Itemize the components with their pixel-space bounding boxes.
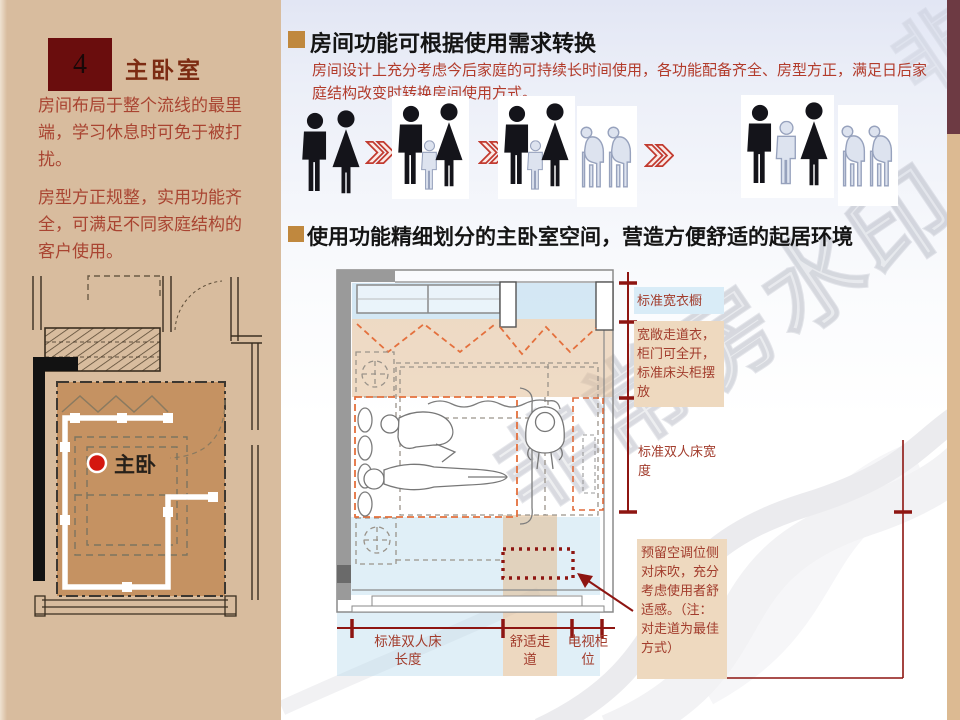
person-elder-icon	[605, 110, 636, 203]
sidebar-paragraph-2: 房型方正规整，实用功能齐全，可满足不同家庭结构的客户使用。	[38, 184, 254, 265]
bedroom-plan-diagram	[282, 255, 947, 695]
closet-dashed-outline	[88, 276, 160, 300]
tv-unit	[583, 435, 595, 493]
annotation-wardrobe: 标准宽衣橱	[634, 287, 724, 314]
family-stage-3-elders	[577, 106, 637, 207]
label-bed-length: 标准双人床长度	[372, 633, 444, 669]
section-number: 4	[73, 49, 87, 81]
sidebar-paragraph-1: 房间布局于整个流线的最里端，学习休息时可免于被打扰。	[38, 92, 254, 173]
family-stage-2	[392, 96, 469, 199]
red-dot-icon	[88, 454, 106, 472]
square-bullet-icon-2	[288, 226, 304, 242]
family-stage-3	[498, 96, 575, 199]
thick-wall-left	[33, 371, 45, 581]
edge-strip-bottom	[947, 134, 960, 720]
label-tv-cabinet: 电视柜位	[562, 633, 614, 669]
person-woman-icon	[328, 107, 364, 202]
section-number-box: 4	[48, 38, 112, 91]
thick-wall-top	[33, 357, 78, 371]
apartment-floorplan: 主卧	[18, 262, 270, 624]
person-woman-icon	[431, 100, 467, 195]
bed-drawing	[358, 388, 560, 524]
person-elder-icon	[866, 109, 897, 202]
heading-2: 使用功能精细划分的主卧室空间，营造方便舒适的起居环境	[307, 221, 853, 251]
person-woman-icon	[537, 100, 573, 195]
square-bullet-icon-1	[288, 31, 305, 48]
annotation-bed-width: 标准双人床宽度	[638, 442, 720, 480]
door-swing-arc-top	[175, 281, 222, 330]
stage-arrow-icon	[644, 142, 674, 174]
bottom-window	[35, 596, 236, 616]
label-comfort-walkway: 舒适走道	[505, 633, 555, 669]
sleeping-figures	[364, 412, 507, 490]
family-stage-4	[741, 95, 834, 198]
page-title: 主卧室	[125, 51, 203, 85]
person-man-icon	[298, 107, 332, 202]
family-stage-1	[296, 103, 366, 206]
person-man-icon	[743, 99, 777, 194]
annotation-ac-note: 预留空调位侧对床吹，充分考虑使用者舒适感。（注：对走道为最佳方式）	[637, 539, 727, 679]
master-bedroom-highlight	[57, 382, 225, 596]
heading-1: 房间功能可根据使用需求转换	[310, 26, 596, 58]
person-woman-icon	[796, 99, 832, 194]
slide: 4 主卧室 房间布局于整个流线的最里端，学习休息时可免于被打扰。 房型方正规整，…	[0, 0, 960, 720]
stage-arrow-icon	[365, 139, 395, 171]
family-stage-4-elders	[838, 105, 898, 206]
sidebar: 4 主卧室 房间布局于整个流线的最里端，学习休息时可免于被打扰。 房型方正规整，…	[0, 0, 281, 720]
edge-strip-top	[947, 0, 960, 134]
annotation-walkway: 宽敞走道衣，柜门可全开，标准床头柜摆放	[634, 321, 724, 407]
room-label: 主卧	[114, 454, 156, 477]
